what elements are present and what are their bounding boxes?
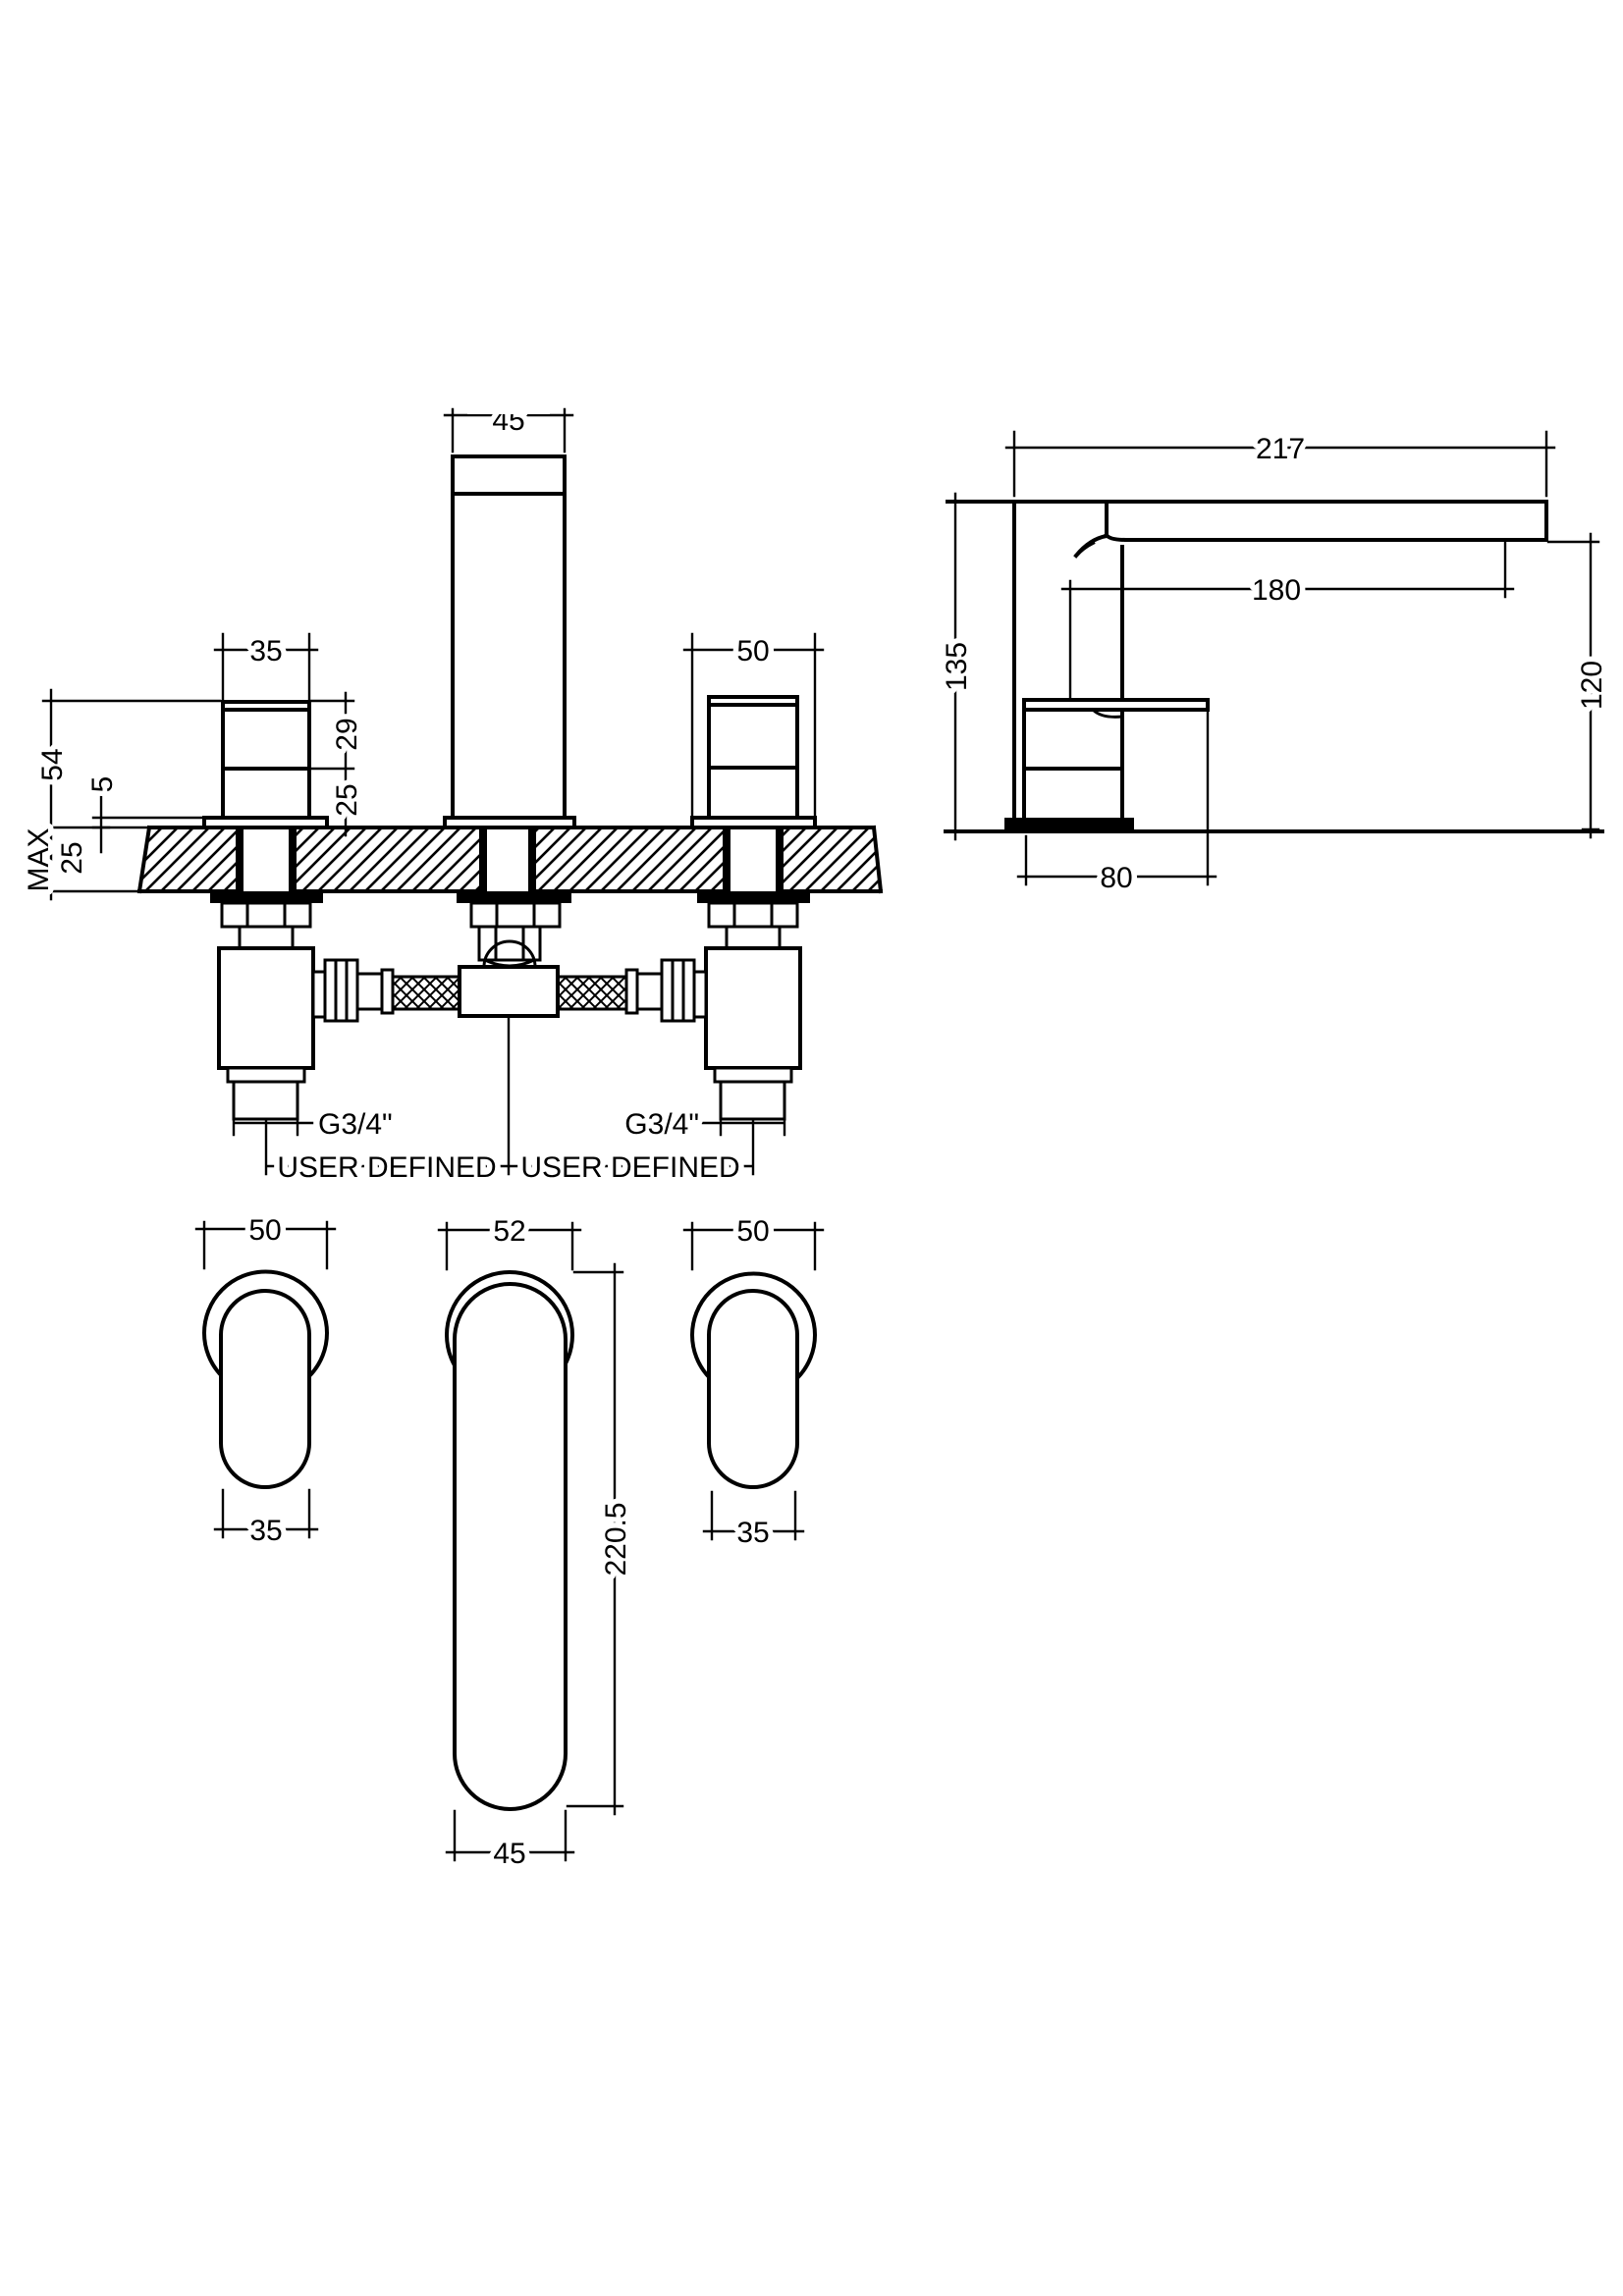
dim-front-thread-right: G3/4" [624, 1108, 699, 1141]
left-hose-sleeve [357, 974, 382, 1009]
dim-line-spacing [266, 1016, 753, 1174]
right-valve-port [694, 972, 706, 1017]
tee-block [460, 967, 558, 1016]
left-shank [240, 927, 293, 948]
sheet-crop-mask [467, 391, 550, 414]
dim-front-height-above-deck: 54 [36, 748, 69, 780]
side-base-plate [1004, 818, 1134, 831]
right-lever-plan [709, 1291, 797, 1487]
right-handle-plan: 50 35 [684, 1215, 823, 1549]
technical-drawing-page: 45 35 50 54 MAX 25 5 29 25 G3/4" G3/ [0, 0, 1623, 2296]
dim-front-deck-thickness: 25 [56, 841, 88, 874]
front-view: 45 35 50 54 MAX 25 5 29 25 G3/4" G3/ [23, 391, 881, 1184]
dim-side-base-depth: 80 [1100, 862, 1132, 894]
countertop-break-edges [139, 828, 881, 891]
side-view: 217 180 135 120 80 [941, 432, 1608, 894]
right-handle-body [709, 697, 797, 818]
dim-line-base-depth [1018, 710, 1216, 884]
spout-body [453, 456, 565, 818]
spout-base-plate [445, 818, 574, 828]
dim-plan-right-plate-diameter: 50 [736, 1215, 769, 1248]
right-hose-nut [662, 960, 694, 1021]
dim-front-spacing-left: USER DEFINED [277, 1151, 496, 1184]
spout-fillet [1107, 535, 1126, 540]
right-valve-body [706, 948, 800, 1068]
right-hose-sleeve [637, 974, 662, 1009]
left-handle-plan: 50 35 [196, 1214, 335, 1547]
dim-front-base-plate-height: 5 [86, 776, 119, 793]
dim-front-handle-lower-height: 25 [331, 783, 363, 816]
center-hex-nut [471, 903, 560, 927]
dim-plan-left-plate-diameter: 50 [248, 1214, 281, 1247]
right-hex-nut [709, 903, 797, 927]
left-braided-hose [393, 977, 460, 1009]
dim-plan-spout-lever-width: 45 [493, 1838, 525, 1870]
dim-plan-spout-plate-diameter: 52 [493, 1215, 525, 1248]
dim-side-overall-length: 217 [1256, 433, 1305, 465]
left-inlet-reducer [228, 1068, 304, 1082]
dim-front-spacing-right: USER DEFINED [520, 1151, 739, 1184]
right-hose-ferrule [626, 970, 637, 1013]
front-view-dimensions: 45 35 50 54 MAX 25 5 29 25 G3/4" G3/ [23, 391, 823, 1184]
countertop-hatch [139, 828, 240, 891]
right-washer [697, 891, 810, 903]
dim-side-spout-height: 120 [1576, 661, 1608, 710]
spout-lever-plan [455, 1284, 566, 1809]
left-inlet-tail [234, 1082, 298, 1119]
spout-plan: 52 220.5 45 [439, 1215, 632, 1870]
left-hex-nut [222, 903, 310, 927]
dim-plan-right-lever-width: 35 [736, 1517, 769, 1549]
side-handle-lever [1024, 700, 1208, 710]
right-braided-hose [558, 977, 626, 1009]
left-hose-nut [325, 960, 357, 1021]
dim-front-left-handle-width: 35 [249, 635, 282, 667]
under-counter-assembly [210, 891, 810, 1119]
spout-front [445, 456, 574, 828]
right-handle-base-plate [692, 818, 815, 828]
left-handle-base-plate [204, 818, 327, 828]
dim-plan-spout-length: 220.5 [600, 1502, 632, 1575]
right-shank [727, 927, 780, 948]
left-valve-body [219, 948, 313, 1068]
dim-front-right-handle-width: 50 [736, 635, 769, 667]
right-inlet-reducer [715, 1068, 791, 1082]
right-handle-front [692, 697, 815, 828]
dim-side-spout-reach: 180 [1252, 574, 1301, 607]
side-view-outline [946, 502, 1602, 831]
left-handle-front [204, 702, 327, 828]
countertop-section [139, 828, 881, 891]
dim-line-spout-reach [1062, 543, 1513, 697]
faucet-dimension-drawing: 45 35 50 54 MAX 25 5 29 25 G3/4" G3/ [0, 0, 1623, 2296]
left-hose-ferrule [382, 970, 393, 1013]
dim-plan-left-lever-width: 35 [249, 1515, 282, 1547]
dim-side-overall-height: 135 [941, 642, 973, 691]
dim-front-thread-left: G3/4" [318, 1108, 393, 1141]
countertop-hatch [780, 828, 881, 891]
spout-swoosh [1076, 536, 1107, 556]
plan-view: 50 35 52 220.5 45 50 35 [196, 1214, 823, 1870]
left-handle-body [223, 702, 309, 818]
left-washer [210, 891, 323, 903]
countertop-hatch [532, 828, 727, 891]
left-valve-port [313, 972, 325, 1017]
dim-front-deck-max-label: MAX [23, 828, 55, 891]
spout-arm-profile [947, 502, 1546, 540]
left-lever-plan [221, 1291, 309, 1487]
right-inlet-tail [721, 1082, 784, 1119]
countertop-hatch [293, 828, 483, 891]
dim-front-handle-upper-height: 29 [331, 718, 363, 750]
center-washer [457, 891, 571, 903]
